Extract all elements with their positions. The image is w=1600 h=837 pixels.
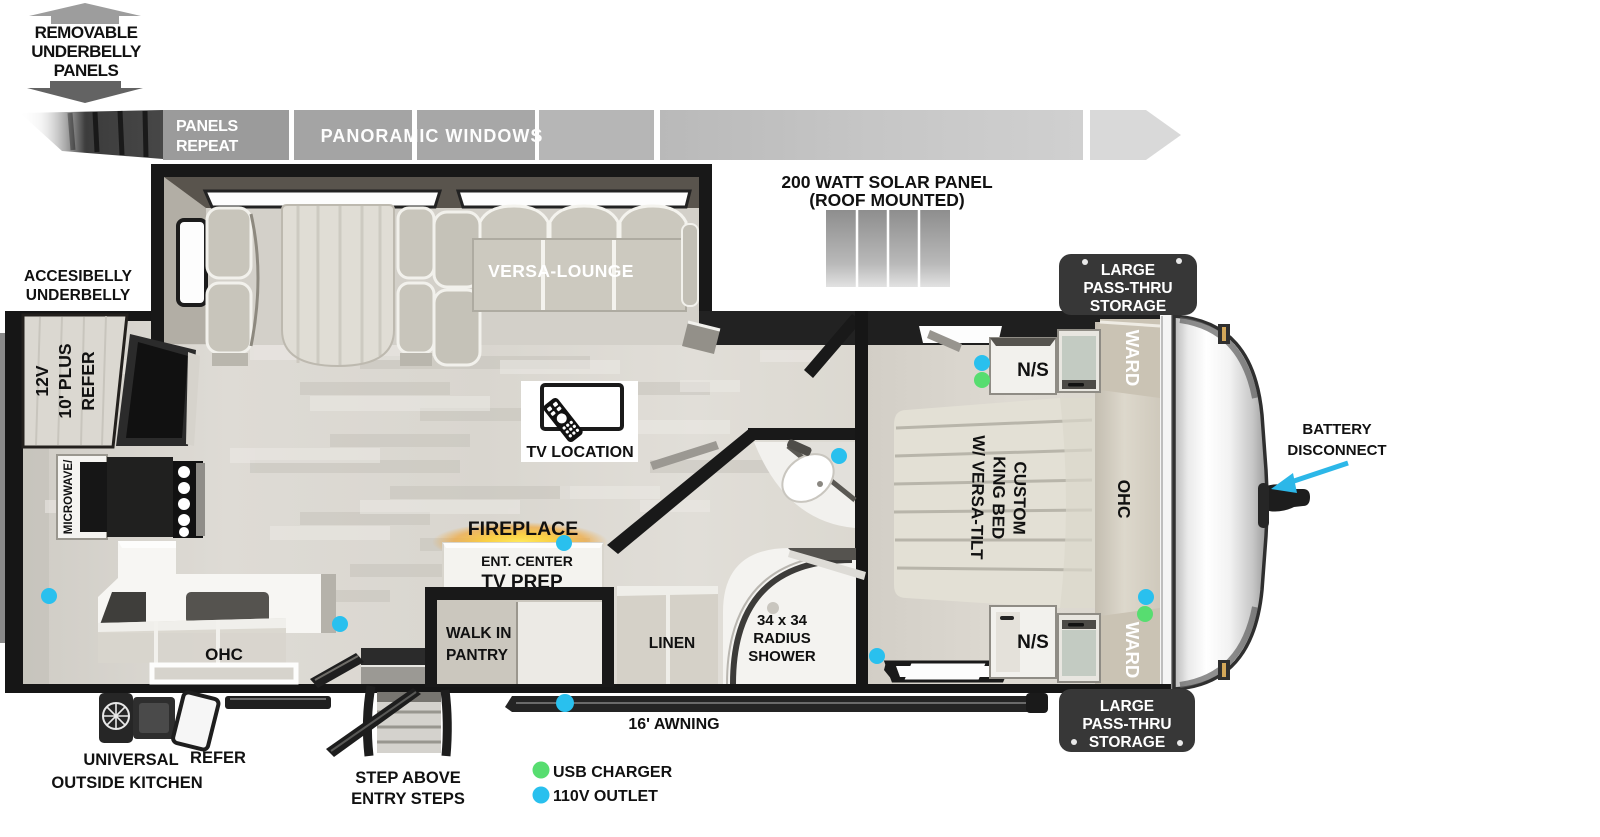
svg-text:PASS-THRU: PASS-THRU: [1082, 716, 1171, 733]
svg-text:RADIUS: RADIUS: [753, 630, 811, 647]
svg-text:WALK IN: WALK IN: [446, 625, 511, 642]
svg-text:STORAGE: STORAGE: [1090, 298, 1166, 315]
svg-text:LINEN: LINEN: [649, 635, 696, 652]
svg-text:(ROOF MOUNTED): (ROOF MOUNTED): [809, 190, 965, 210]
svg-text:CUSTOM: CUSTOM: [1009, 461, 1029, 535]
svg-text:200 WATT SOLAR PANEL: 200 WATT SOLAR PANEL: [781, 172, 993, 192]
svg-text:REFER: REFER: [190, 749, 246, 767]
svg-text:12V: 12V: [32, 365, 52, 396]
svg-text:UNIVERSAL: UNIVERSAL: [83, 751, 178, 769]
svg-text:34 x 34: 34 x 34: [757, 612, 808, 629]
svg-text:KING BED: KING BED: [988, 456, 1008, 539]
svg-text:STORAGE: STORAGE: [1089, 734, 1165, 751]
svg-text:UNDERBELLY: UNDERBELLY: [26, 287, 131, 304]
svg-text:TV LOCATION: TV LOCATION: [526, 444, 633, 461]
svg-text:DISCONNECT: DISCONNECT: [1287, 442, 1386, 459]
svg-text:ENTRY STEPS: ENTRY STEPS: [351, 790, 465, 808]
svg-text:WARD: WARD: [1122, 330, 1143, 387]
svg-text:REMOVABLE: REMOVABLE: [35, 23, 138, 42]
svg-text:N/S: N/S: [1017, 360, 1049, 381]
svg-text:REPEAT: REPEAT: [176, 138, 238, 155]
svg-text:REFER: REFER: [78, 351, 98, 411]
svg-text:OHC: OHC: [205, 645, 243, 664]
svg-text:ENT. CENTER: ENT. CENTER: [481, 553, 573, 569]
svg-text:LARGE: LARGE: [1100, 698, 1154, 715]
svg-text:STEP ABOVE: STEP ABOVE: [355, 769, 460, 787]
svg-text:PANORAMIC WINDOWS: PANORAMIC WINDOWS: [321, 126, 544, 146]
svg-text:PASS-THRU: PASS-THRU: [1083, 280, 1172, 297]
svg-text:PANELS: PANELS: [176, 118, 239, 135]
svg-text:16' AWNING: 16' AWNING: [628, 716, 719, 733]
svg-text:W/ VERSA-TILT: W/ VERSA-TILT: [967, 435, 988, 560]
svg-text:10' PLUS: 10' PLUS: [55, 343, 75, 418]
svg-text:VERSA-LOUNGE: VERSA-LOUNGE: [488, 261, 634, 281]
svg-text:ACCESIBELLY: ACCESIBELLY: [24, 268, 133, 285]
svg-text:N/S: N/S: [1017, 632, 1049, 653]
svg-text:WARD: WARD: [1122, 622, 1143, 679]
svg-text:BATTERY: BATTERY: [1302, 421, 1371, 438]
svg-text:OUTSIDE KITCHEN: OUTSIDE KITCHEN: [51, 774, 202, 792]
svg-text:MICROWAVE/: MICROWAVE/: [63, 459, 75, 534]
svg-text:USB CHARGER: USB CHARGER: [553, 764, 673, 781]
svg-text:110V OUTLET: 110V OUTLET: [553, 788, 658, 805]
svg-text:OHC: OHC: [1114, 480, 1134, 519]
svg-text:SHOWER: SHOWER: [748, 648, 816, 665]
svg-text:PANTRY: PANTRY: [446, 647, 509, 664]
svg-text:UNDERBELLY: UNDERBELLY: [31, 42, 142, 61]
svg-text:LARGE: LARGE: [1101, 262, 1155, 279]
svg-text:PANELS: PANELS: [54, 61, 119, 80]
